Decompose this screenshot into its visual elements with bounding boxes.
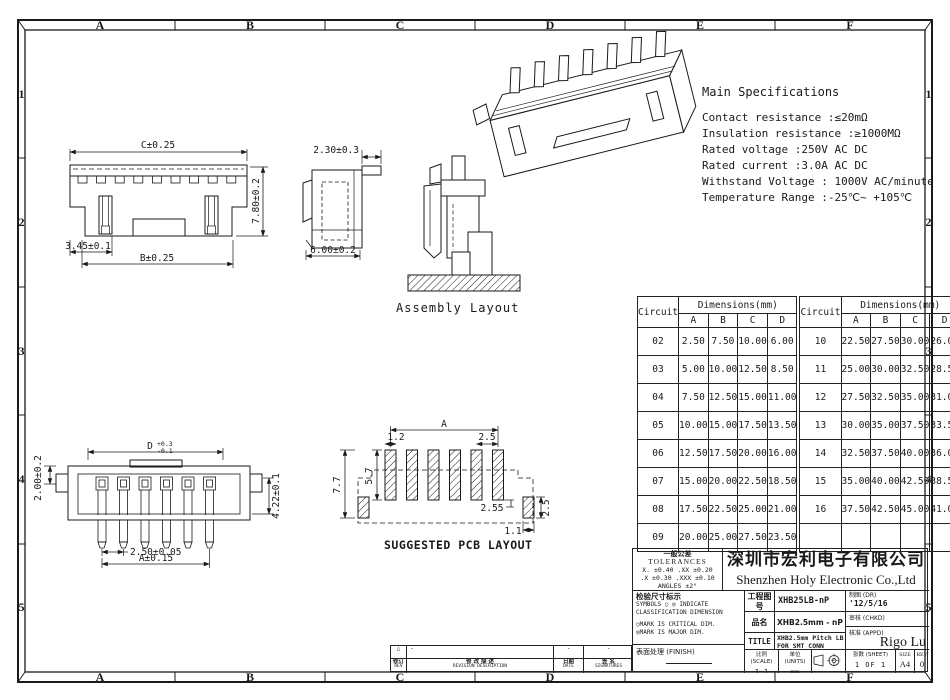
inspection-line: ○MARK IS CRITICAL DIM. [636, 621, 741, 629]
eng-no-label: 工程图号 [748, 592, 772, 611]
assembly-view [408, 156, 520, 291]
pin [118, 477, 130, 548]
approved-label: 核准 (APPD) [849, 630, 884, 637]
tolerance-line: X. ±0.40 .XX ±0.20 [633, 566, 722, 574]
col-header: Circuit [638, 297, 679, 328]
units-cell: 单位 (UNITS) mm [779, 650, 812, 673]
svg-text:D: D [546, 18, 555, 32]
revision-desc-value: - [407, 646, 554, 659]
main-specifications: Main Specifications Contact resistance :… [702, 84, 938, 206]
title-block: 一般公差 TOLERANCES X. ±0.40 .XX ±0.20 .X ±0… [632, 548, 928, 672]
eng-no-value-cell: XHB25LB-nP [775, 591, 846, 612]
rev-label: REV [915, 652, 929, 659]
eng-no-label-cell: 工程图号 [745, 591, 775, 612]
dim-label: 1.2 [387, 432, 404, 443]
units-value: mm [779, 669, 811, 673]
approved-name: Rigo Lu [849, 635, 926, 650]
table-row: 1022.5027.5030.0026.00 [800, 328, 950, 356]
table-row: 0817.5022.5025.0021.00 [638, 496, 797, 524]
col-header: B [871, 314, 901, 328]
revision-desc-header: 修 改 描 述 REVISION DESCRIPTION [407, 659, 554, 673]
inspection-cell: 检验尺寸标示 SYMBOLS ○ ◎ INDICATE CLASSIFICATI… [633, 591, 745, 645]
tolerances-title-en: TOLERANCES [633, 558, 722, 566]
title-label: TITLE [748, 637, 771, 646]
revision-rev-header: 修订 REV [391, 659, 407, 673]
revision-sign-value: - [584, 646, 633, 659]
inspection-line: SYMBOLS ○ ◎ INDICATE [636, 601, 741, 609]
isometric-view [465, 27, 701, 180]
pin [204, 477, 216, 548]
pin [139, 477, 151, 548]
spec-line: Rated voltage :250V AC DC [702, 142, 938, 158]
rev-value: 0 [915, 661, 929, 668]
svg-text:3: 3 [19, 344, 25, 358]
svg-text:B: B [246, 670, 254, 684]
spec-line: Contact resistance :≤20mΩ [702, 110, 938, 126]
dim-label: 2.55 [481, 503, 504, 514]
inspection-title: 检验尺寸标示 [636, 593, 741, 601]
table-row: 035.0010.0012.508.50 [638, 356, 797, 384]
specs-title: Main Specifications [702, 84, 938, 100]
tolerance-line: .X ±0.30 .XXX ±0.10 [633, 574, 722, 582]
finish-label: 表面处理 (FINISH) [636, 648, 695, 656]
size-value: A4 [896, 661, 914, 668]
table-row: 1432.5037.5040.0036.00 [800, 440, 950, 468]
table-row: 1227.5032.5035.0031.00 [800, 384, 950, 412]
company-cell: 深圳市宏利电子有限公司 Shenzhen Holy Electronic Co.… [723, 549, 929, 591]
units-label: 单位 (UNITS) [779, 652, 811, 666]
dimensions-tables: Circuit Dimensions(mm) A B C D 022.507.5… [637, 296, 950, 552]
title-label-cell: TITLE [745, 633, 775, 650]
sheet-label: 张数 (SHEET) [846, 652, 895, 659]
table-row: 0715.0020.0022.5018.50 [638, 468, 797, 496]
dim-label: 6.00±0.2 [310, 245, 356, 256]
col-header: D [767, 314, 797, 328]
svg-text:C: C [396, 18, 405, 32]
dim-label: D [147, 441, 153, 452]
size-label: SIZE [896, 652, 914, 659]
scale-value: 1:1 [745, 669, 778, 673]
front-view: C±0.25 7.80±0.2 3.45±0.1 B±0.25 [65, 140, 268, 268]
rev-cell: REV 0 [915, 650, 929, 673]
part-label: 品名 [752, 618, 768, 627]
pcb-layout-label: SUGGESTED PCB LAYOUT [384, 538, 532, 552]
col-header: Dimensions(mm) [679, 297, 797, 314]
spec-line: Rated current :3.0A AC DC [702, 158, 938, 174]
dim-label: 7.7 [332, 476, 343, 493]
sheet-cell: 张数 (SHEET) 1 OF 1 [846, 650, 896, 673]
spec-line: Withstand Voltage : 1000V AC/minute [702, 174, 938, 190]
svg-text:E: E [696, 18, 704, 32]
revision-symbol-cell: △ [391, 646, 407, 659]
col-header: Dimensions(mm) [841, 297, 950, 314]
dim-label: A [441, 419, 447, 430]
dim-label: 2.00±0.2 [33, 455, 44, 501]
col-header: C [900, 314, 930, 328]
dim-label: C±0.25 [141, 140, 175, 151]
pcb-layout-view: A 1.2 2.5 5.7 7.7 2.55 2.5 1.1 [332, 419, 552, 537]
dim-label: 5.7 [364, 467, 375, 484]
table-row: 022.507.5010.006.00 [638, 328, 797, 356]
checked-label: 审核 (CHKD) [849, 613, 926, 622]
dim-label: 4.22±0.1 [271, 473, 282, 519]
inspection-line: ◎MARK IS MAJOR DIM. [636, 629, 741, 637]
dim-label: 1.1 [504, 526, 521, 537]
projection-cell [812, 650, 846, 673]
table-row: 1535.0040.0042.5038.50 [800, 468, 950, 496]
finish-cell: 表面处理 (FINISH) [633, 645, 745, 673]
size-cell: SIZE A4 [896, 650, 915, 673]
spec-line: Temperature Range :-25℃~ +105℃ [702, 190, 938, 206]
col-header: C [738, 314, 768, 328]
svg-text:4: 4 [19, 472, 25, 486]
dim-label: A±0.15 [139, 553, 173, 564]
revision-sign-header: 签 名 SIGNATURES [584, 659, 633, 673]
dim-label: -0.1 [157, 447, 173, 455]
dim-label: 3.45±0.1 [65, 241, 111, 252]
dim-label: 2.5 [478, 432, 495, 443]
title-value: XHB2.5mm Pitch LB FOR SMT CONN [777, 634, 844, 650]
table-row: 0612.5017.5020.0016.00 [638, 440, 797, 468]
col-header: Circuit [800, 297, 841, 328]
dimensions-table-left: Circuit Dimensions(mm) A B C D 022.507.5… [637, 296, 797, 552]
col-header: A [841, 314, 871, 328]
part-value: XHB2.5mm - nP 立贴带扣 [777, 618, 843, 633]
table-row: 1637.5042.5045.0041.00 [800, 496, 950, 524]
svg-text:1: 1 [19, 87, 25, 101]
side-view: 2.30±0.3 6.00±0.2 [303, 145, 381, 260]
dim-label: 2.5 [541, 499, 552, 516]
company-name-en: Shenzhen Holy Electronic Co.,Ltd [723, 571, 929, 588]
dim-label: 7.80±0.2 [251, 178, 262, 224]
dimensions-table-right: Circuit Dimensions(mm) A B C D 1022.5027… [799, 296, 950, 552]
pin [161, 477, 173, 548]
tolerances-cell: 一般公差 TOLERANCES X. ±0.40 .XX ±0.20 .X ±0… [633, 549, 723, 591]
revision-date-header: 日期 DATE [554, 659, 584, 673]
scale-cell: 比例 (SCALE) 1:1 [745, 650, 779, 673]
svg-text:B: B [246, 18, 254, 32]
scale-label: 比例 (SCALE) [745, 652, 778, 666]
table-row: 047.5012.5015.0011.00 [638, 384, 797, 412]
spec-line: Insulation resistance :≥1000MΩ [702, 126, 938, 142]
drawn-date: '12/5/16 [849, 600, 926, 608]
svg-text:2: 2 [926, 215, 932, 229]
smt-front-view: D +0.3 -0.1 2.00±0.2 4.22±0.1 2.50±0.05 … [33, 440, 282, 568]
company-name-cn: 深圳市宏利电子有限公司 [723, 549, 929, 571]
col-header: B [708, 314, 738, 328]
approved-cell: 核准 (APPD) Rigo Lu [846, 627, 929, 650]
svg-text:A: A [96, 18, 105, 32]
revision-date-value: - [554, 646, 584, 659]
revision-strip: △ - - - 修订 REV 修 改 描 述 REVISION DESCRIPT… [390, 645, 632, 672]
drawing-sheet: A B C D E F A B C D E F 1 2 3 4 5 1 2 3 … [0, 0, 950, 700]
revision-triangle-icon: △ [397, 646, 401, 652]
third-angle-projection-icon [812, 650, 844, 671]
pin [96, 477, 108, 548]
part-label-cell: 品名 [745, 612, 775, 633]
tolerance-line: ANGLES ±2° [633, 582, 722, 590]
drawn-cell: 制图 (DR) '12/5/16 [846, 591, 929, 612]
dim-label: 2.30±0.3 [313, 145, 359, 156]
sheet-value: 1 OF 1 [846, 662, 895, 669]
table-row: 1330.0035.0037.5033.50 [800, 412, 950, 440]
table-row: 1125.0030.0032.5028.50 [800, 356, 950, 384]
dim-label: B±0.25 [140, 253, 174, 264]
col-header: A [679, 314, 709, 328]
svg-text:A: A [96, 670, 105, 684]
finish-underline [666, 663, 712, 664]
svg-text:2: 2 [19, 215, 25, 229]
checked-cell: 审核 (CHKD) [846, 612, 929, 627]
title-value-cell: XHB2.5mm Pitch LB FOR SMT CONN [775, 633, 846, 650]
assembly-layout-label: Assembly Layout [396, 301, 519, 315]
svg-text:F: F [846, 18, 853, 32]
part-value-cell: XHB2.5mm - nP 立贴带扣 [775, 612, 846, 633]
table-row: 0510.0015.0017.5013.50 [638, 412, 797, 440]
eng-no-value: XHB25LB-nP [778, 596, 829, 606]
svg-text:5: 5 [19, 600, 25, 614]
inspection-line: CLASSIFICATION DIMENSION [636, 609, 741, 617]
pin [182, 477, 194, 548]
col-header: D [930, 314, 950, 328]
